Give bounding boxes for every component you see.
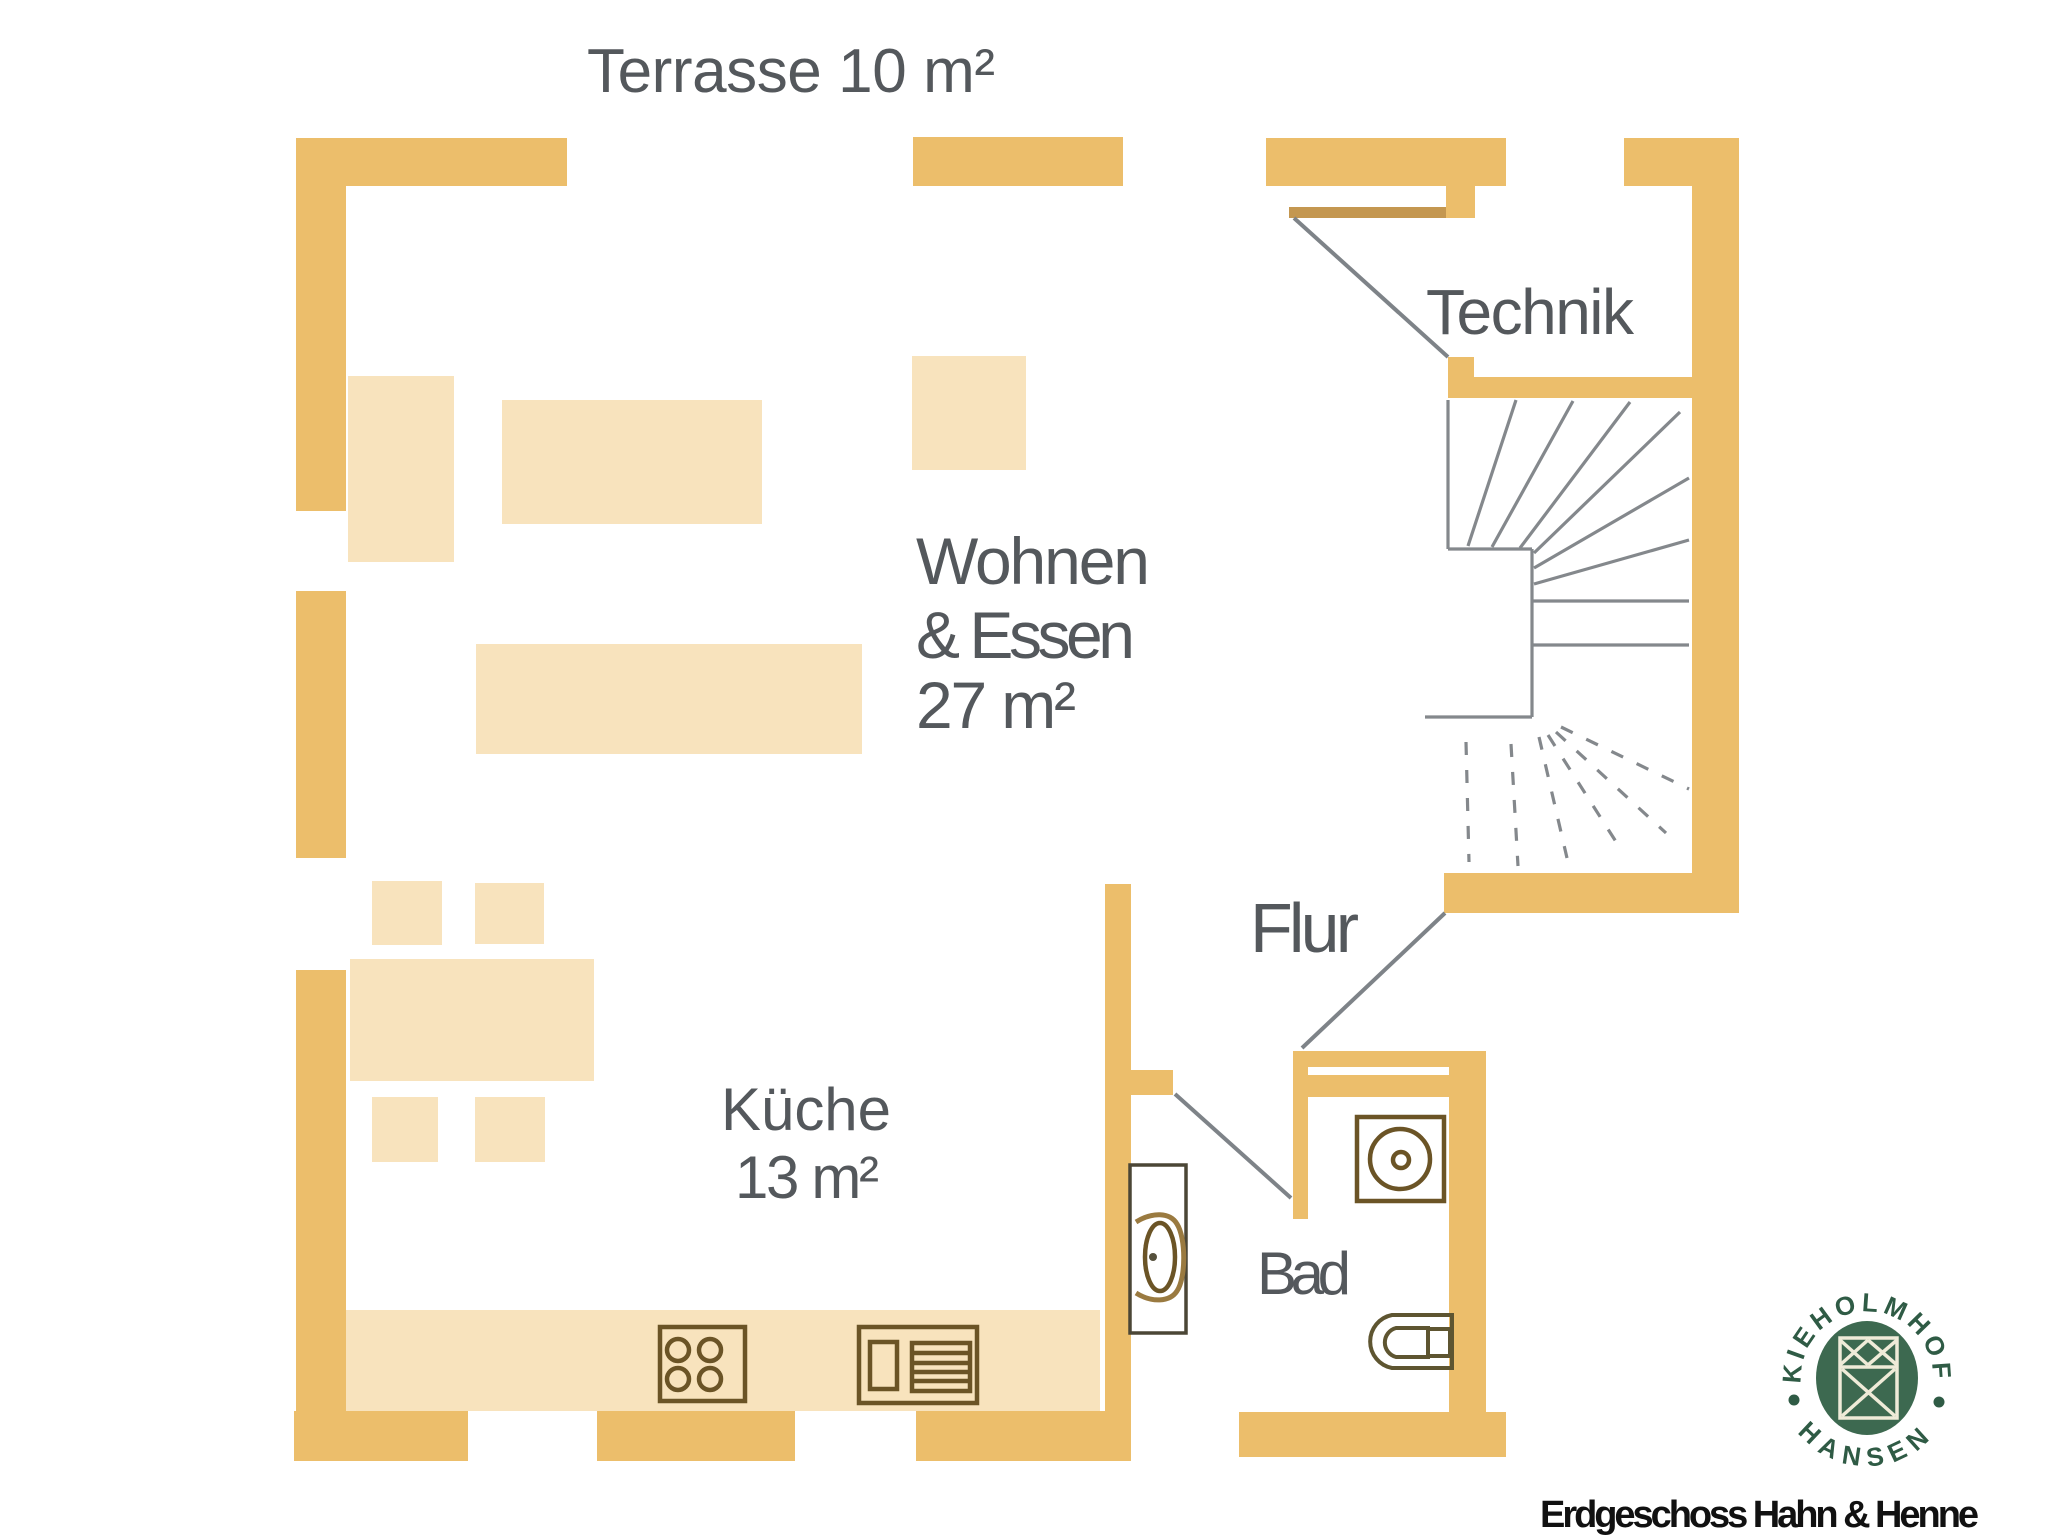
svg-text:Erdgeschoss Hahn & Henne: Erdgeschoss Hahn & Henne <box>1540 1494 1979 1536</box>
svg-text:Wohnen: Wohnen <box>916 524 1150 598</box>
svg-text:& Essen: & Essen <box>916 598 1135 672</box>
svg-text:Küche: Küche <box>721 1076 891 1143</box>
svg-text:27 m²: 27 m² <box>916 668 1076 742</box>
svg-text:Technik: Technik <box>1426 276 1635 348</box>
svg-text:Terrasse 10 m²: Terrasse 10 m² <box>587 37 995 106</box>
svg-text:13 m²: 13 m² <box>735 1144 879 1211</box>
svg-text:Bad: Bad <box>1257 1240 1351 1307</box>
svg-text:Flur: Flur <box>1250 889 1359 967</box>
